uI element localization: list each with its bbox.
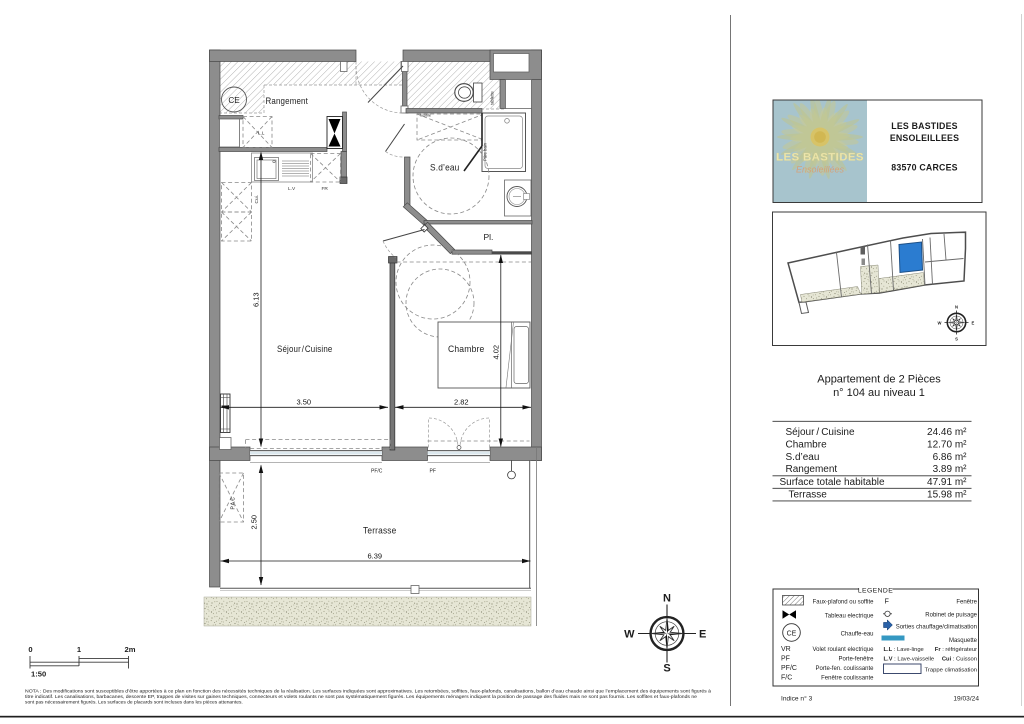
svg-text:4.02: 4.02	[491, 345, 500, 360]
svg-text:Terrasse: Terrasse	[363, 526, 397, 537]
svg-text:Pl.: Pl.	[484, 232, 494, 242]
svg-text:n° 104 au niveau 1: n° 104 au niveau 1	[833, 387, 925, 399]
svg-text:L.L: L.L	[258, 131, 265, 136]
svg-text:2.82: 2.82	[454, 398, 469, 407]
svg-text:Appartement de 2 Pièces: Appartement de 2 Pièces	[817, 374, 941, 386]
svg-text:LES BASTIDES: LES BASTIDES	[776, 152, 864, 164]
svg-text:tablette: tablette	[490, 91, 495, 105]
svg-text:E: E	[972, 320, 975, 325]
svg-text:NOTA : Des modifications sont: NOTA : Des modifications sont susceptibl…	[25, 689, 711, 695]
svg-text:N: N	[663, 593, 671, 605]
svg-text:Surface totale habitable: Surface totale habitable	[780, 477, 886, 488]
svg-text:6.39: 6.39	[368, 551, 383, 560]
svg-text:Fenêtre coulissante: Fenêtre coulissante	[821, 675, 874, 681]
svg-text:Robinet de puisage: Robinet de puisage	[925, 613, 977, 619]
svg-text:W: W	[624, 629, 635, 641]
svg-text:19/03/24: 19/03/24	[953, 695, 979, 702]
svg-text:Porte-fen. coulissante: Porte-fen. coulissante	[815, 666, 874, 672]
svg-text:S.d’eau: S.d’eau	[430, 163, 460, 174]
svg-text:S: S	[663, 663, 670, 675]
svg-text:Faux-plafond ou soffite: Faux-plafond ou soffite	[813, 599, 875, 605]
svg-text:1:50: 1:50	[31, 670, 46, 679]
svg-text:Masquette: Masquette	[949, 638, 978, 644]
svg-text:3.89 m²: 3.89 m²	[933, 464, 968, 475]
svg-text:E: E	[699, 629, 706, 641]
svg-text:0: 0	[28, 645, 32, 654]
svg-text:Cui : Cuisson: Cui : Cuisson	[942, 656, 977, 662]
svg-text:2.50: 2.50	[250, 515, 259, 530]
svg-text:Rangement: Rangement	[266, 96, 309, 107]
svg-text:CE: CE	[787, 630, 797, 637]
svg-text:PF: PF	[430, 469, 436, 475]
svg-text:47.91 m²: 47.91 m²	[927, 477, 967, 488]
svg-text:ENSOLEILLEES: ENSOLEILLEES	[890, 133, 959, 143]
svg-text:Rangement: Rangement	[786, 464, 838, 475]
svg-text:Trappe climatisation: Trappe climatisation	[925, 668, 978, 674]
svg-text:CE: CE	[228, 96, 240, 105]
svg-text:15.98 m²: 15.98 m²	[927, 490, 967, 501]
svg-text:Séjour / Cuisine: Séjour / Cuisine	[277, 344, 333, 355]
svg-text:Ensoleillées: Ensoleillées	[796, 165, 845, 175]
svg-text:VR: VR	[781, 646, 791, 653]
svg-text:Indice n° 3: Indice n° 3	[781, 694, 813, 702]
svg-text:Volet roulant electrique: Volet roulant electrique	[812, 647, 874, 653]
svg-text:S.d’eau: S.d’eau	[786, 452, 820, 463]
svg-text:24.46 m²: 24.46 m²	[927, 427, 967, 438]
svg-text:PF/C: PF/C	[371, 469, 383, 475]
svg-text:N: N	[955, 305, 958, 310]
svg-text:2m: 2m	[125, 645, 136, 654]
svg-text:6.13: 6.13	[252, 292, 261, 307]
svg-text:F/C: F/C	[781, 674, 792, 681]
svg-text:titre indicatif. Les canalisat: titre indicatif. Les canalisations, barb…	[25, 694, 697, 700]
svg-text:3.50: 3.50	[297, 398, 312, 407]
svg-text:12.70 m²: 12.70 m²	[927, 439, 967, 450]
svg-text:Sorties chauffage/climatisatio: Sorties chauffage/climatisation	[896, 624, 977, 630]
svg-text:6.86 m²: 6.86 m²	[933, 452, 968, 463]
svg-text:Chambre: Chambre	[448, 344, 485, 355]
svg-text:PF: PF	[781, 655, 790, 662]
svg-text:Séjour / Cuisine: Séjour / Cuisine	[786, 427, 855, 438]
svg-text:83570 CARCES: 83570 CARCES	[891, 162, 957, 172]
svg-text:S: S	[955, 337, 958, 342]
svg-text:Chambre: Chambre	[786, 439, 828, 450]
svg-text:L.V: L.V	[288, 186, 296, 192]
svg-text:F: F	[885, 596, 890, 605]
svg-text:Cui.: Cui.	[254, 195, 260, 204]
svg-text:Fenêtre: Fenêtre	[956, 599, 977, 605]
svg-text:L.L : Lave-linge: L.L : Lave-linge	[884, 647, 924, 653]
svg-text:Fr : réfrigérateur: Fr : réfrigérateur	[935, 647, 977, 653]
svg-text:LES BASTIDES: LES BASTIDES	[891, 121, 957, 131]
svg-text:P.A.C: P.A.C	[231, 497, 237, 510]
svg-text:LEGENDE: LEGENDE	[858, 587, 893, 594]
svg-text:sont pas nécessairement figuré: sont pas nécessairement figurés. Les sur…	[25, 699, 243, 705]
svg-text:W: W	[938, 320, 942, 325]
svg-text:Chauffe-eau: Chauffe-eau	[841, 631, 874, 637]
svg-text:Terrasse: Terrasse	[789, 490, 828, 501]
svg-text:PF/C: PF/C	[781, 665, 797, 672]
svg-text:FR: FR	[322, 186, 329, 192]
svg-text:L.V : Lave-vaisselle: L.V : Lave-vaisselle	[884, 656, 935, 662]
svg-text:Porte-fenêtre: Porte-fenêtre	[838, 656, 874, 662]
svg-text:Tableau electrique: Tableau electrique	[825, 613, 874, 619]
